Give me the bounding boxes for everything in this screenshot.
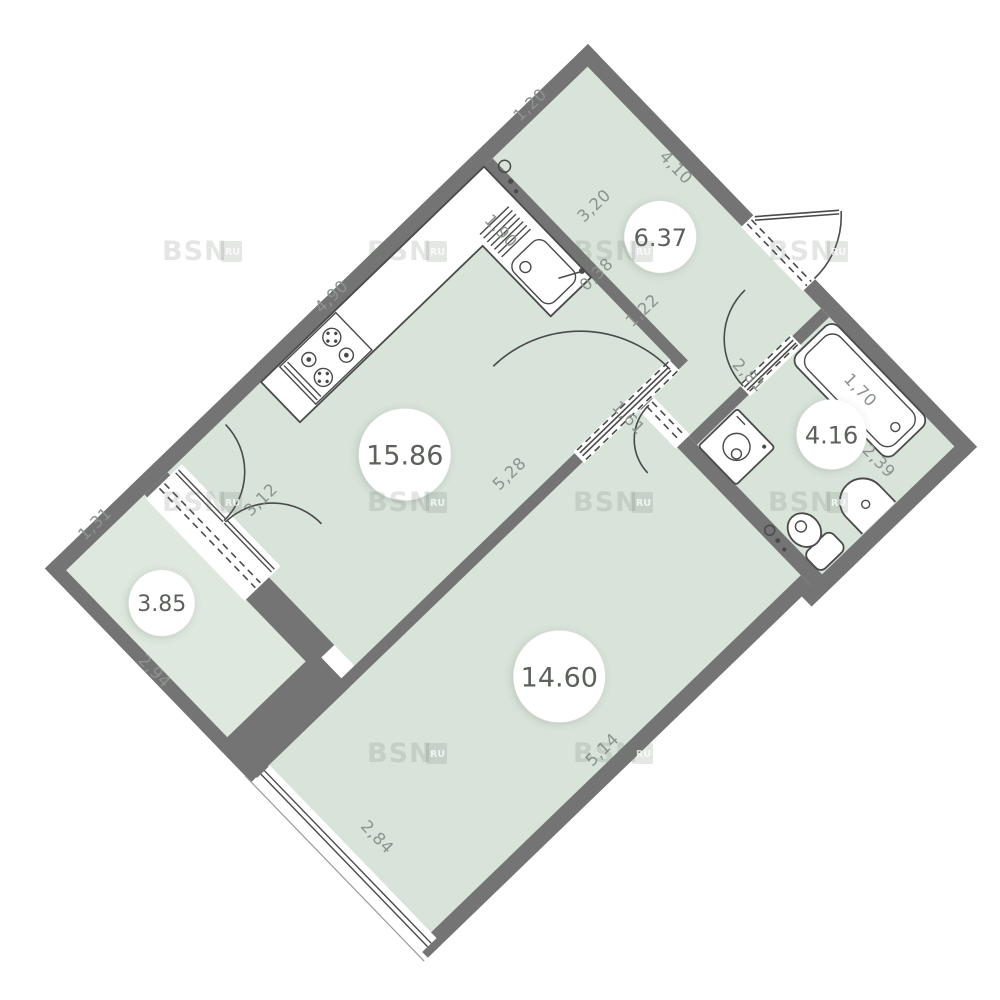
watermark-text: BSN xyxy=(768,487,834,518)
watermark-text: BSN xyxy=(367,487,433,518)
floor-plan-svg: 1,20 4,10 3,20 1,90 0,38 1,22 1,61 2,81 … xyxy=(0,0,1000,1000)
watermark-sub: RU xyxy=(430,498,445,509)
watermark-sub: RU xyxy=(636,498,651,509)
watermark-text: BSN xyxy=(768,236,834,267)
watermark-text: BSN xyxy=(162,487,228,518)
watermark-sub: RU xyxy=(225,498,240,509)
watermark-text: BSN xyxy=(573,738,639,769)
watermark-sub: RU xyxy=(831,498,846,509)
watermark-text: BSN xyxy=(573,236,639,267)
area-value: 15.86 xyxy=(366,441,443,472)
floor-plan-image: 1,20 4,10 3,20 1,90 0,38 1,22 1,61 2,81 … xyxy=(0,0,1000,1000)
watermark-text: BSN xyxy=(367,738,433,769)
watermark-sub: RU xyxy=(430,749,445,760)
watermark-sub: RU xyxy=(636,247,651,258)
area-value: 3.85 xyxy=(137,592,186,617)
watermark-text: BSN xyxy=(162,236,228,267)
watermark-sub: RU xyxy=(831,247,846,258)
area-value: 14.60 xyxy=(521,662,598,693)
watermark-text: BSN xyxy=(367,236,433,267)
area-value: 4.16 xyxy=(805,421,858,449)
watermark-sub: RU xyxy=(636,749,651,760)
watermark-text: BSN xyxy=(573,487,639,518)
watermark-sub: RU xyxy=(225,247,240,258)
watermark-sub: RU xyxy=(430,247,445,258)
